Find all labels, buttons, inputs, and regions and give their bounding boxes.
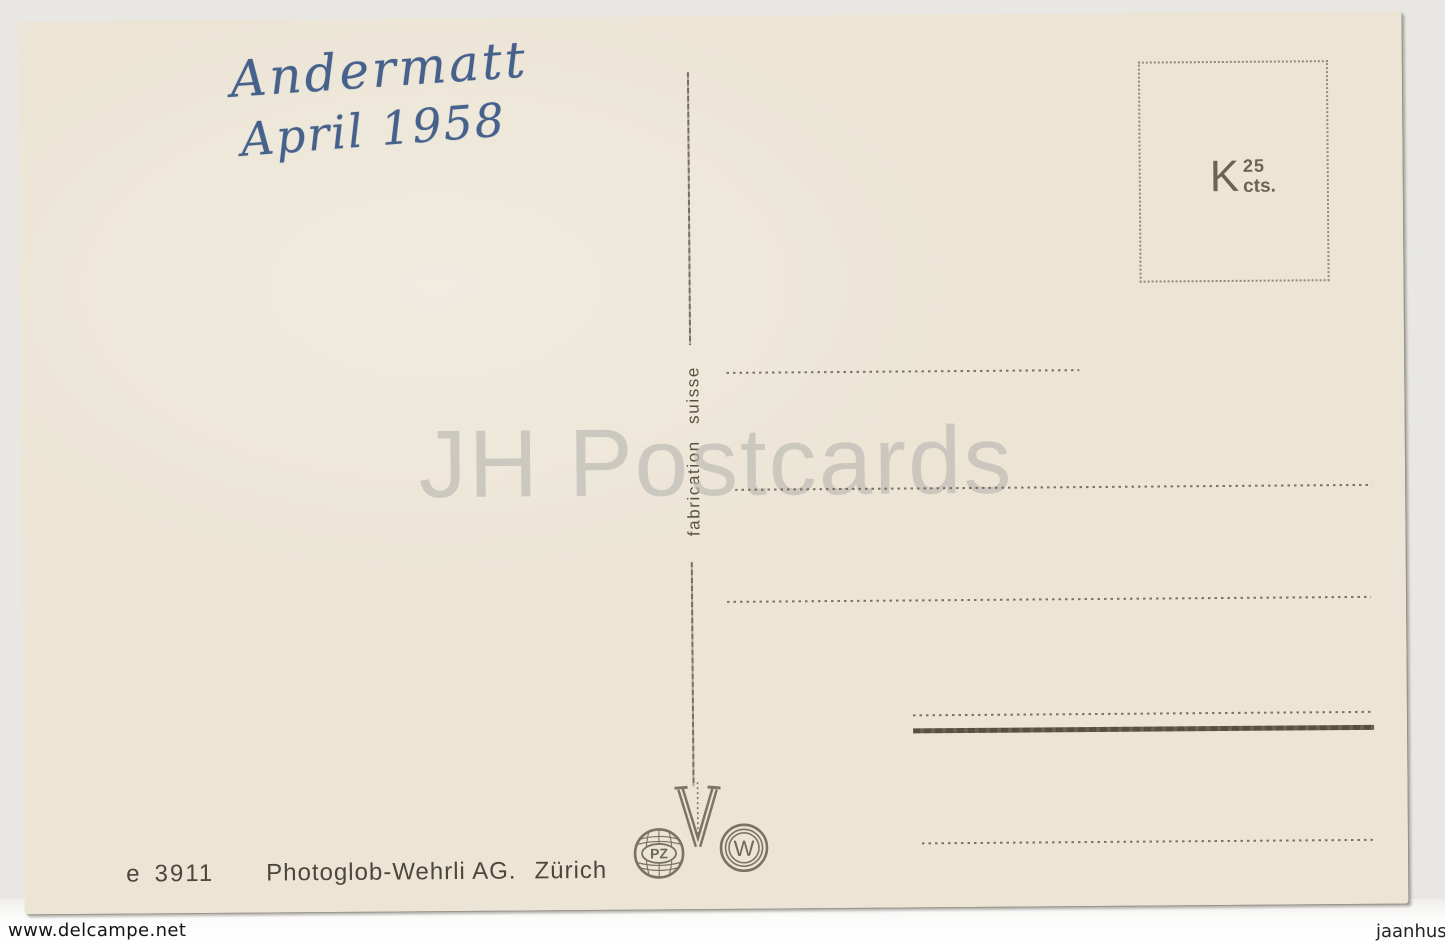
collector-watermark-right: jaanhus bbox=[1376, 921, 1445, 942]
pz-globe-logo: PZ bbox=[631, 825, 687, 881]
stamp-currency-letter: K bbox=[1210, 154, 1240, 198]
stamp-box: K 25 cts. bbox=[1138, 60, 1330, 282]
stamp-unit: cts. bbox=[1243, 176, 1276, 195]
sender-line-1 bbox=[913, 711, 1372, 717]
site-watermark-left: www.delcampe.net bbox=[8, 920, 186, 941]
divider-line-top bbox=[687, 72, 691, 345]
brand-watermark: JH Postcards bbox=[371, 405, 1062, 520]
scan-background: Andermatt April 1958 K 25 cts. fabricati… bbox=[0, 0, 1445, 945]
fabrication-suisse-label: fabrication suisse bbox=[683, 363, 704, 539]
publisher-city: Zürich bbox=[534, 857, 607, 886]
pz-logo-text: PZ bbox=[650, 845, 668, 861]
stamp-rate: K 25 cts. bbox=[1210, 154, 1276, 199]
postcard-back: Andermatt April 1958 K 25 cts. fabricati… bbox=[18, 11, 1409, 915]
w-logo-text: W bbox=[734, 836, 755, 861]
address-line-2 bbox=[735, 484, 1372, 491]
publisher-name: Photoglob-Wehrli AG. bbox=[266, 858, 517, 888]
sender-line-2 bbox=[922, 839, 1373, 845]
publisher-code-number: 3911 bbox=[154, 860, 214, 888]
w-circle-logo: W bbox=[718, 822, 770, 874]
address-line-1 bbox=[726, 369, 1079, 374]
publisher-imprint: e 3911 Photoglob-Wehrli AG. Zürich bbox=[126, 857, 607, 889]
stamp-value: 25 bbox=[1243, 157, 1276, 177]
thick-rule-line bbox=[913, 725, 1374, 734]
publisher-code-letter: e bbox=[126, 861, 141, 889]
address-line-3 bbox=[727, 596, 1371, 603]
divider-line-bottom bbox=[691, 562, 695, 786]
